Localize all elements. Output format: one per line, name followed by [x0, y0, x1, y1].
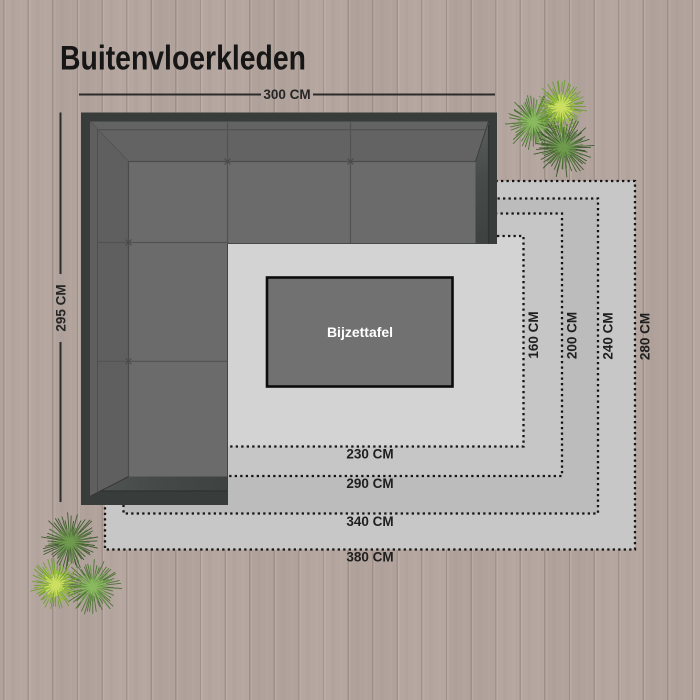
svg-text:340 CM: 340 CM [346, 514, 393, 529]
svg-text:160 CM: 160 CM [526, 311, 541, 358]
svg-text:290 CM: 290 CM [346, 476, 393, 491]
svg-text:240 CM: 240 CM [601, 312, 616, 359]
svg-text:200 CM: 200 CM [565, 312, 580, 359]
svg-text:300 CM: 300 CM [263, 87, 310, 102]
svg-text:Buitenvloerkleden: Buitenvloerkleden [60, 40, 306, 78]
svg-text:295 CM: 295 CM [53, 284, 68, 331]
svg-text:380 CM: 380 CM [346, 550, 393, 565]
svg-text:Bijzettafel: Bijzettafel [327, 324, 393, 340]
svg-text:280 CM: 280 CM [638, 313, 653, 360]
svg-text:230 CM: 230 CM [346, 447, 393, 462]
